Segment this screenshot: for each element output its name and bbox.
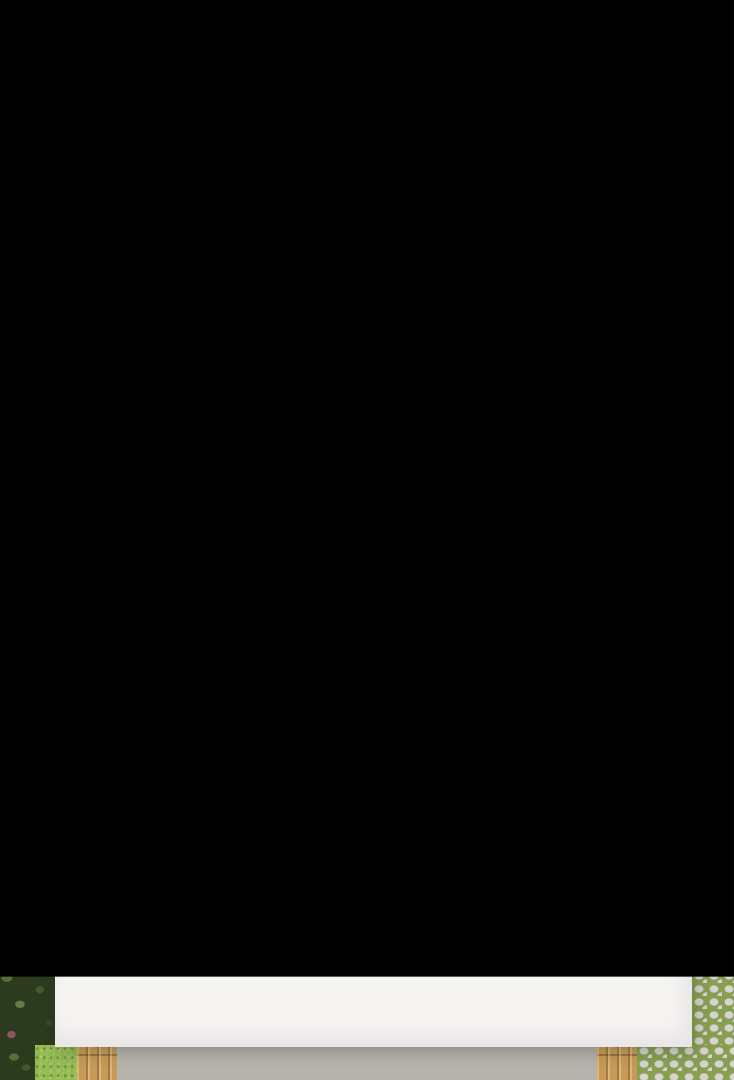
cobblestone-corner	[637, 1045, 734, 1080]
floorplan-render: Lo	[0, 0, 734, 1080]
lawn-bottom-left	[35, 1045, 77, 1080]
hedge-bottom-left	[0, 1045, 35, 1080]
wood-deck-bottom-left	[77, 1045, 117, 1080]
triangle-pattern-rug	[0, 0, 734, 977]
wood-deck-bottom-right	[597, 1045, 637, 1080]
concrete-patio-bottom	[117, 1045, 597, 1080]
